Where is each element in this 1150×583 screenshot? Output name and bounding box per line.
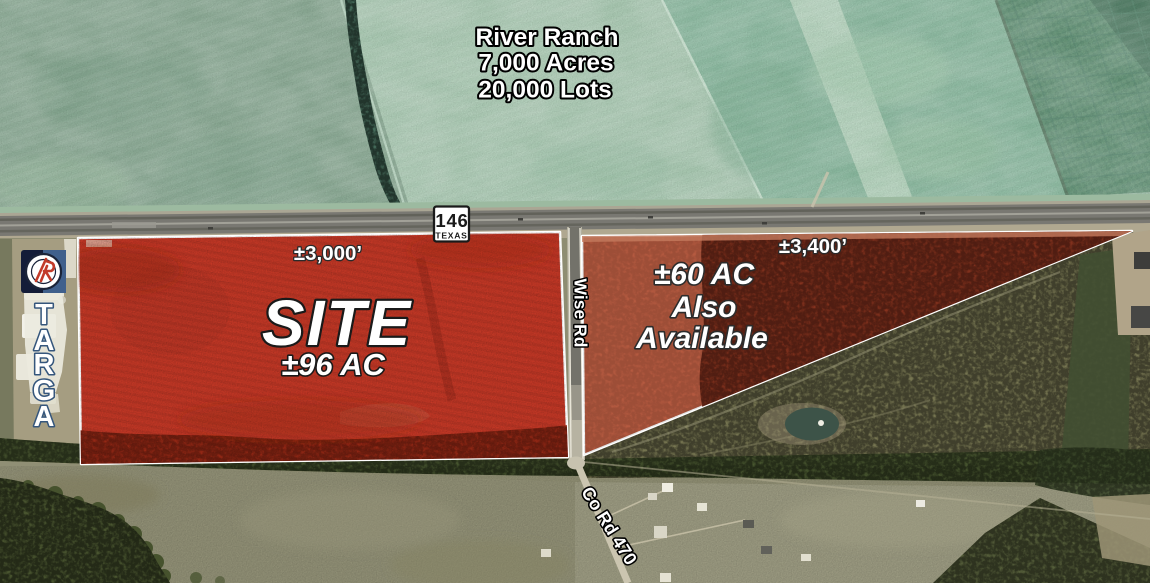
svg-text:River Ranch: River Ranch <box>476 24 619 51</box>
svg-text:±96 AC: ±96 AC <box>281 347 385 382</box>
svg-text:7,000 Acres: 7,000 Acres <box>478 50 613 77</box>
svg-text:±3,000’: ±3,000’ <box>294 242 362 265</box>
svg-text:TEXAS: TEXAS <box>435 231 467 241</box>
svg-text:Wise Rd: Wise Rd <box>571 279 591 348</box>
svg-text:A: A <box>34 401 55 433</box>
svg-text:±60 AC: ±60 AC <box>654 258 756 291</box>
svg-text:20,000 Lots: 20,000 Lots <box>478 77 611 104</box>
svg-text:Available: Available <box>635 322 768 355</box>
svg-text:Also: Also <box>670 291 736 324</box>
svg-text:±3,400’: ±3,400’ <box>779 235 847 258</box>
svg-text:146: 146 <box>435 210 468 231</box>
